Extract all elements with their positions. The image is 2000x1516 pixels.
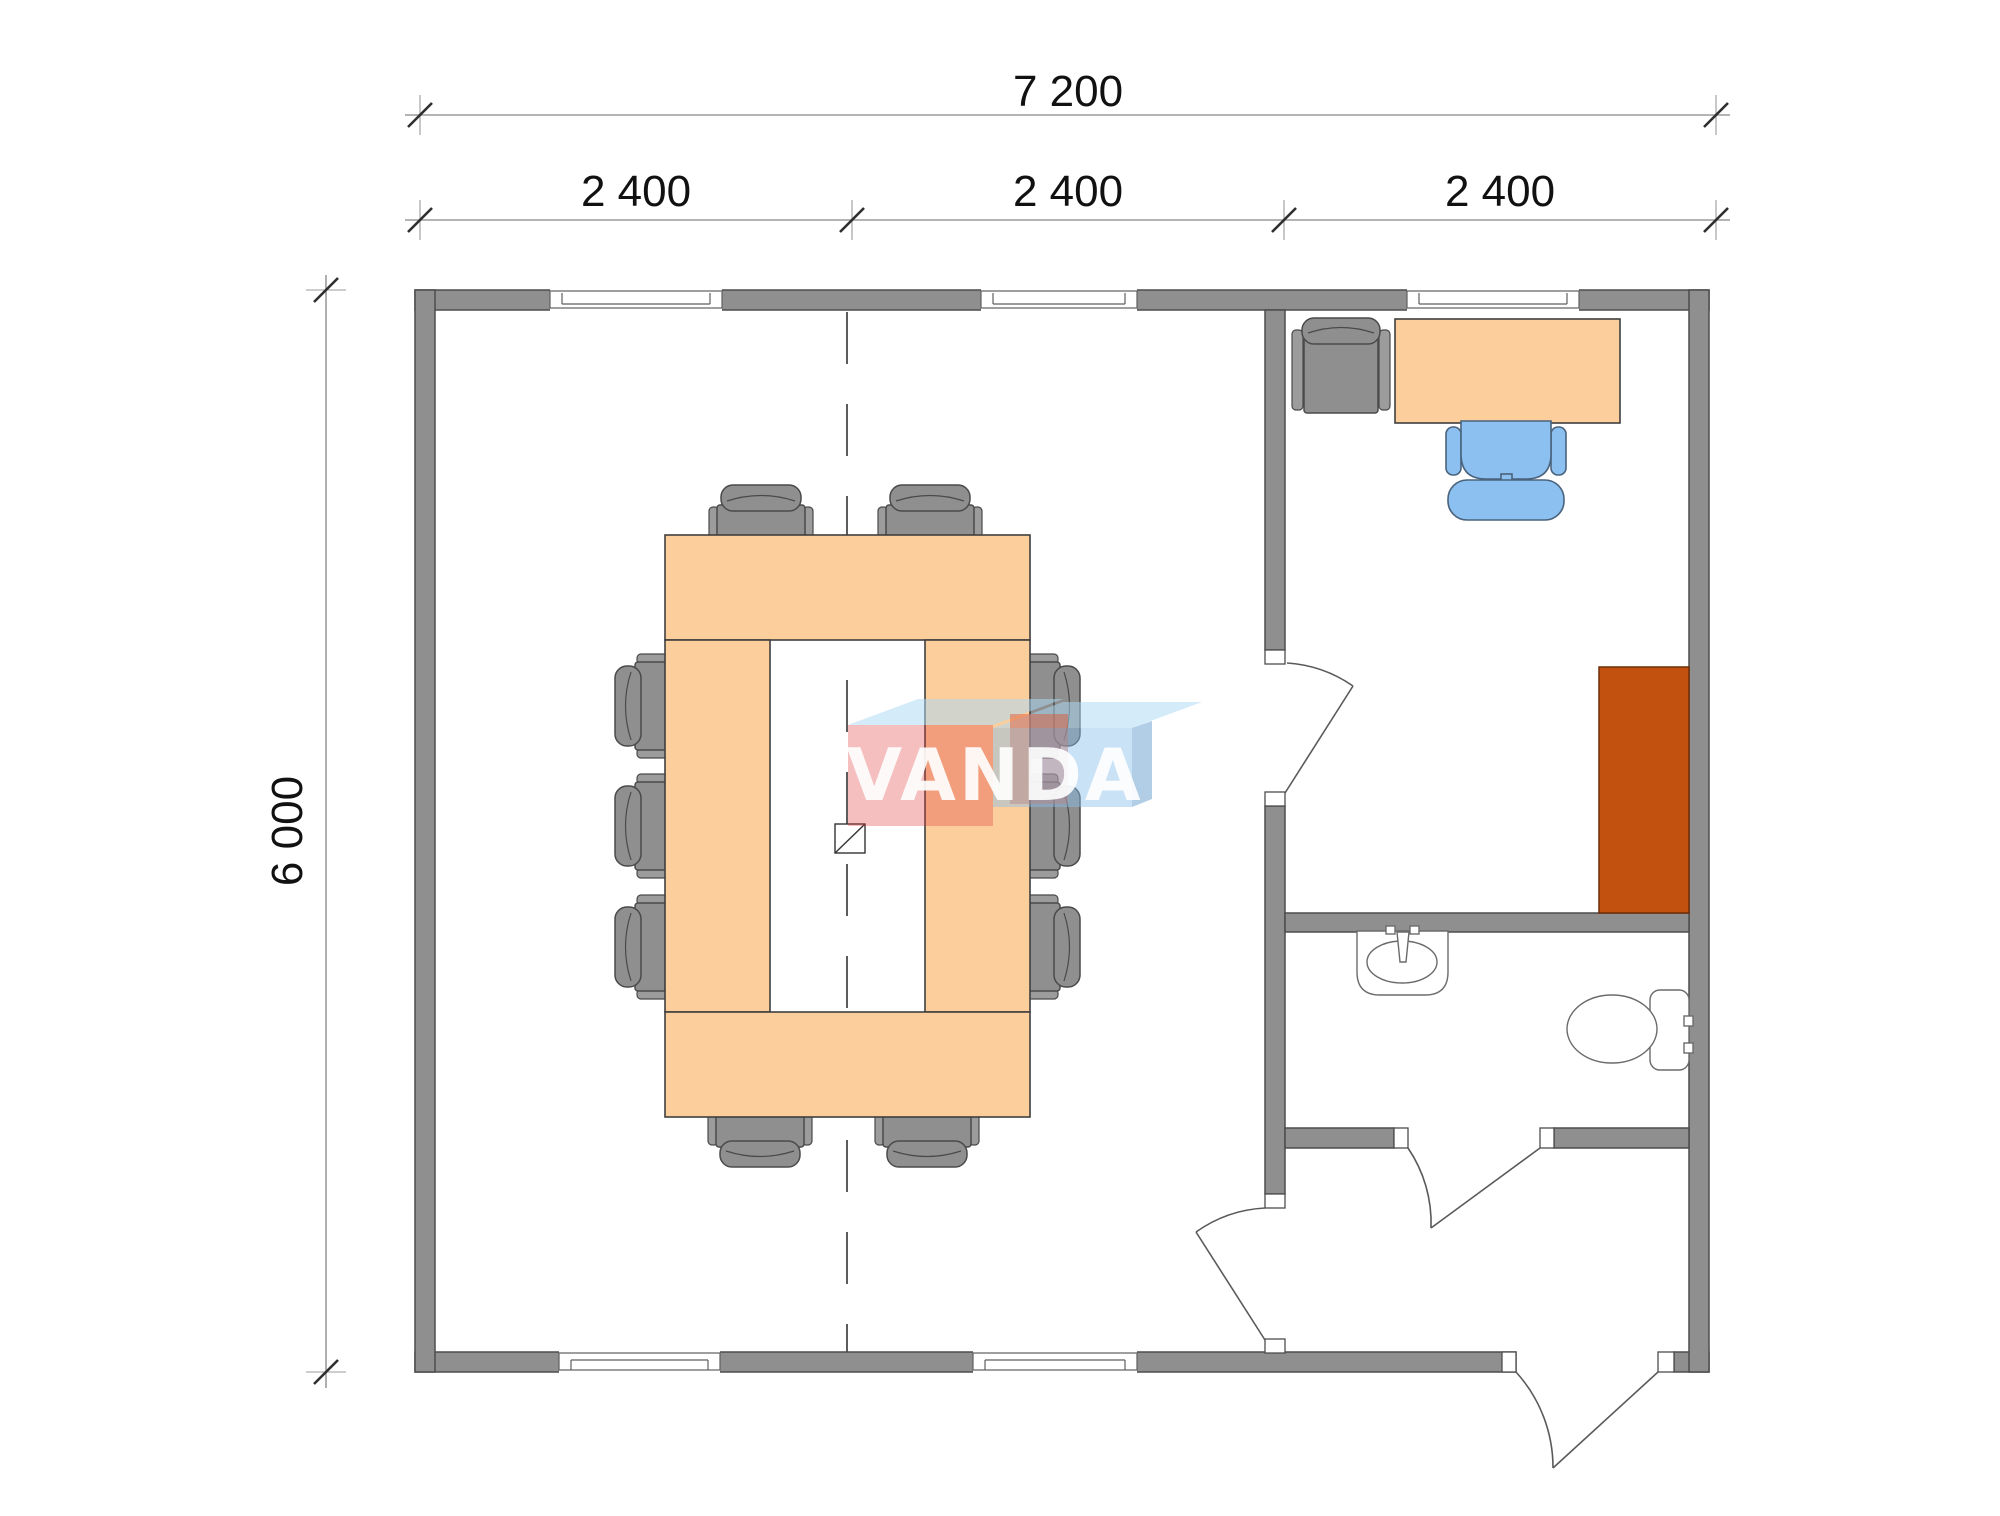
cabinet (1599, 667, 1689, 913)
window (981, 289, 1137, 311)
door-jamb (1265, 650, 1285, 664)
bathroom-wall-bottom (1285, 1128, 1394, 1148)
total-height-label: 6 000 (263, 776, 312, 886)
armrest (1446, 427, 1461, 475)
window (1407, 289, 1579, 311)
bay-3-label: 2 400 (1445, 167, 1555, 216)
window (973, 1351, 1137, 1373)
office-chair-blue (1446, 421, 1566, 520)
door-swing-arc (1408, 1148, 1431, 1228)
door-leaf (1431, 1148, 1540, 1228)
partition-wall-vertical (1265, 806, 1285, 1194)
door-jamb (1265, 1339, 1285, 1353)
armrest (1551, 427, 1566, 475)
door-jamb (1540, 1128, 1554, 1148)
door-leaf (1553, 1372, 1658, 1468)
bay-2-label: 2 400 (1013, 167, 1123, 216)
door-jamb (1658, 1352, 1674, 1372)
logo-text: VANDA (846, 733, 1143, 817)
office-desk (1395, 319, 1620, 423)
bay-1-label: 2 400 (581, 167, 691, 216)
total-width-label: 7 200 (1013, 67, 1123, 116)
partition-wall-vertical (1265, 310, 1285, 650)
table-section-top (665, 535, 1030, 640)
flush-valve (1684, 1043, 1693, 1053)
toilet (1567, 990, 1693, 1070)
width-dimension: 7 200 (405, 67, 1730, 135)
column-marker (835, 824, 865, 853)
floor-plan-page: 7 200 2 400 2 400 2 400 6 000 (0, 0, 2000, 1516)
door-leaf (1285, 686, 1353, 793)
office-guest-chair (1292, 318, 1390, 413)
door-jamb (1502, 1352, 1516, 1372)
bathroom-wall-bottom (1554, 1128, 1689, 1148)
door-swing-arc (1196, 1208, 1265, 1232)
faucet-handle (1410, 926, 1419, 934)
toilet-bowl (1567, 995, 1657, 1063)
bathroom-wall-top (1285, 913, 1689, 932)
door-swing-arc (1516, 1372, 1553, 1468)
table-section-bottom (665, 1012, 1030, 1117)
height-dimension: 6 000 (263, 275, 346, 1388)
door-jamb (1265, 792, 1285, 806)
sink (1357, 926, 1448, 995)
exterior-wall-left (415, 290, 435, 1372)
vanda-watermark: VANDA (846, 699, 1202, 826)
exterior-wall-right (1689, 290, 1709, 1372)
door-swing-arc (1287, 663, 1353, 686)
backrest (1448, 480, 1564, 520)
door-jamb (1394, 1128, 1408, 1148)
table-section-left (665, 640, 770, 1012)
door-leaf (1196, 1232, 1265, 1340)
bay-dimension: 2 400 2 400 2 400 (405, 167, 1730, 240)
flush-valve (1684, 1016, 1693, 1026)
faucet-handle (1386, 926, 1395, 934)
floor-plan-drawing: 7 200 2 400 2 400 2 400 6 000 (0, 0, 2000, 1516)
window (550, 289, 722, 311)
window (559, 1351, 720, 1373)
door-jamb (1265, 1194, 1285, 1208)
seat (1461, 421, 1551, 479)
